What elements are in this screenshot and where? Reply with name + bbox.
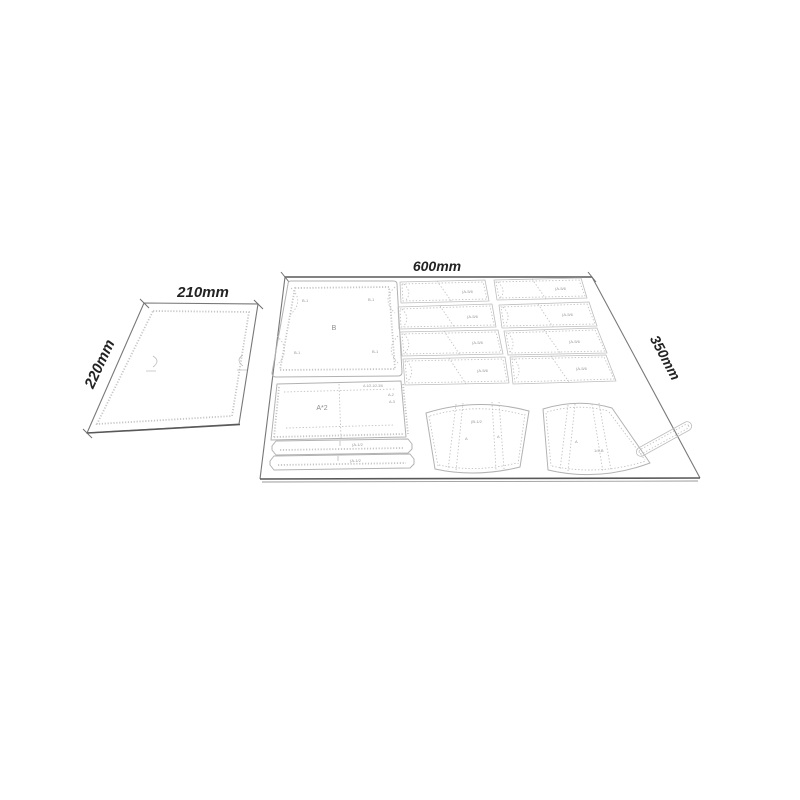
fan-2-outline [543, 403, 650, 474]
card-6-outline [499, 302, 597, 328]
card-3-fold-line [444, 331, 460, 355]
large-sheet-height-label: 350mm [647, 333, 684, 383]
piece-b-corner-label-3: B-1 [294, 350, 301, 355]
card-7-notch-arc [508, 333, 513, 352]
fan-1-radial-1a [448, 404, 456, 470]
card-1-stitch [402, 282, 487, 301]
card-8-stitch [512, 357, 614, 382]
strip-1-label: (A-1/2 [352, 442, 364, 447]
fan-2-mark-left: A [575, 439, 578, 444]
card-4-fold-line [449, 358, 466, 384]
card-4-label: (A-5/6 [477, 368, 489, 373]
pattern-template-diagram: 210mm 220mm 600mm 350mm B-1 B-1 B-1 B-1 … [0, 0, 800, 800]
small-sheet-bottom-edge [87, 425, 240, 434]
card-1-label: (A-5/6 [462, 289, 474, 294]
small-sheet-stitch-border [97, 311, 249, 424]
fan-1-radial-1b [456, 403, 463, 471]
small-sheet-right-tab [237, 355, 247, 370]
card-8-outline [510, 355, 616, 384]
piece-a2-stitch-left [274, 387, 279, 438]
fan-1-mark-left: A [465, 436, 468, 441]
card-5-label: (A-5/6 [555, 286, 567, 291]
strip-2-label: (A-1/2 [350, 458, 362, 463]
strap-piece [635, 420, 694, 458]
card-7-fold-line [544, 330, 561, 354]
fan-2-stitch-top [547, 407, 608, 412]
card-5-fold-line [532, 279, 546, 299]
card-pocket-6: (A-5/6 [499, 302, 597, 328]
small-sheet-width-label: 210mm [176, 284, 229, 301]
card-pocket-5: (A-5/6 [494, 278, 587, 300]
card-3-label: (A-5/6 [472, 340, 484, 345]
fan-1-stitch-bottom [439, 463, 517, 469]
fan-gusset-2: A 1/4-B [543, 403, 650, 475]
card-8-fold-line [551, 356, 569, 382]
fan-2-radial-2a [592, 404, 603, 472]
card-pocket-8: (A-5/6 [510, 355, 616, 384]
strip-1-outline [272, 439, 412, 455]
piece-a2-note-top: A-1/2-1/2-3/6 [363, 384, 383, 388]
piece-a2-outline [271, 381, 406, 440]
card-5-stitch [496, 280, 585, 298]
small-sheet-outline [87, 303, 258, 433]
card-pocket-4: (A-5/6 [403, 357, 509, 385]
large-sheet-bottom-shadow [262, 481, 698, 482]
card-6-stitch [501, 304, 595, 326]
card-1-notch-arc [404, 284, 409, 301]
piece-a2-fold-line-vertical [339, 384, 341, 438]
card-6-label: (A-5/6 [562, 312, 574, 317]
strip-1-stitch [280, 448, 404, 450]
piece-b-corner-label-1: B-1 [302, 298, 309, 303]
card-2-fold-line [440, 306, 455, 328]
fan-1-radial-2a [492, 402, 496, 470]
small-sheet-height-label: 220mm [81, 337, 119, 392]
large-sheet: 600mm 350mm B-1 B-1 B-1 B-1 B A-1/2-1/2-… [260, 258, 700, 482]
card-8-notch-arc [514, 359, 519, 379]
card-2-notch-arc [402, 309, 407, 327]
card-4-outline [403, 357, 509, 385]
card-pocket-2: (A-5/6 [398, 304, 496, 329]
strip-1: (A-1/2 [272, 439, 412, 455]
small-sheet: 210mm 220mm [81, 284, 263, 438]
card-pocket-1: (A-5/6 [400, 280, 489, 303]
card-pocket-7: (A-5/6 [504, 328, 607, 355]
fan-2-radial-1a [560, 405, 568, 470]
large-sheet-bottom-edge [260, 478, 700, 479]
card-4-notch-arc [407, 361, 412, 381]
strip-2-stitch [278, 463, 406, 465]
piece-b-flap: B-1 B-1 B-1 B-1 B [272, 281, 402, 377]
card-2-label: (A-5/6 [467, 314, 479, 319]
piece-b-label: B [332, 325, 337, 332]
piece-a2-note-a2: A-2 [388, 393, 394, 397]
fan-1-label: (B-1/2 [471, 419, 483, 424]
piece-b-outline [272, 281, 402, 377]
fan-1-radial-2b [499, 402, 504, 469]
card-7-label: (A-5/6 [569, 339, 581, 344]
fan-gusset-1: (B-1/2 A A [426, 402, 529, 473]
strap-stitch [638, 424, 689, 455]
strip-2: (A-1/2 [270, 454, 414, 470]
fan-1-outline [426, 404, 529, 473]
card-pocket-3: (A-5/6 [400, 330, 503, 356]
fan-2-label: 1/4-B [594, 448, 604, 453]
fan-2-radial-1b [568, 404, 575, 471]
piece-a2-fold-row-top [284, 389, 396, 392]
diagram-canvas: 210mm 220mm 600mm 350mm B-1 B-1 B-1 B-1 … [0, 0, 800, 800]
card-7-stitch [506, 330, 605, 353]
piece-b-corner-label-2: B-1 [368, 297, 375, 302]
fan-1-stitch-top [430, 409, 524, 416]
card-8-label: (A-5/6 [576, 366, 588, 371]
piece-a2-fold-row-bottom [286, 425, 394, 428]
piece-a2-body: A-1/2-1/2-3/6 A-2 A-3 A*2 [271, 381, 408, 440]
piece-b-corner-label-4: B-1 [372, 349, 379, 354]
large-sheet-width-label: 600mm [413, 258, 461, 274]
card-4-stitch [405, 359, 507, 383]
piece-a2-label: A*2 [316, 405, 327, 412]
fan-2-stitch-right [609, 412, 645, 460]
strap-outline [635, 420, 694, 458]
strip-2-outline [270, 454, 414, 470]
piece-b-arc-right-bottom [391, 336, 399, 364]
small-sheet-left-tab [146, 356, 157, 371]
piece-a2-note-a3: A-3 [389, 400, 395, 404]
card-6-fold-line [538, 304, 553, 327]
fan-1-mark-right: A [497, 434, 500, 439]
large-sheet-right-edge [592, 277, 700, 478]
card-1-fold-line [437, 281, 452, 302]
card-2-stitch [400, 306, 494, 327]
card-3-notch-arc [404, 334, 409, 353]
card-5-outline [494, 278, 587, 300]
piece-a2-stitch-bottom [274, 434, 404, 437]
